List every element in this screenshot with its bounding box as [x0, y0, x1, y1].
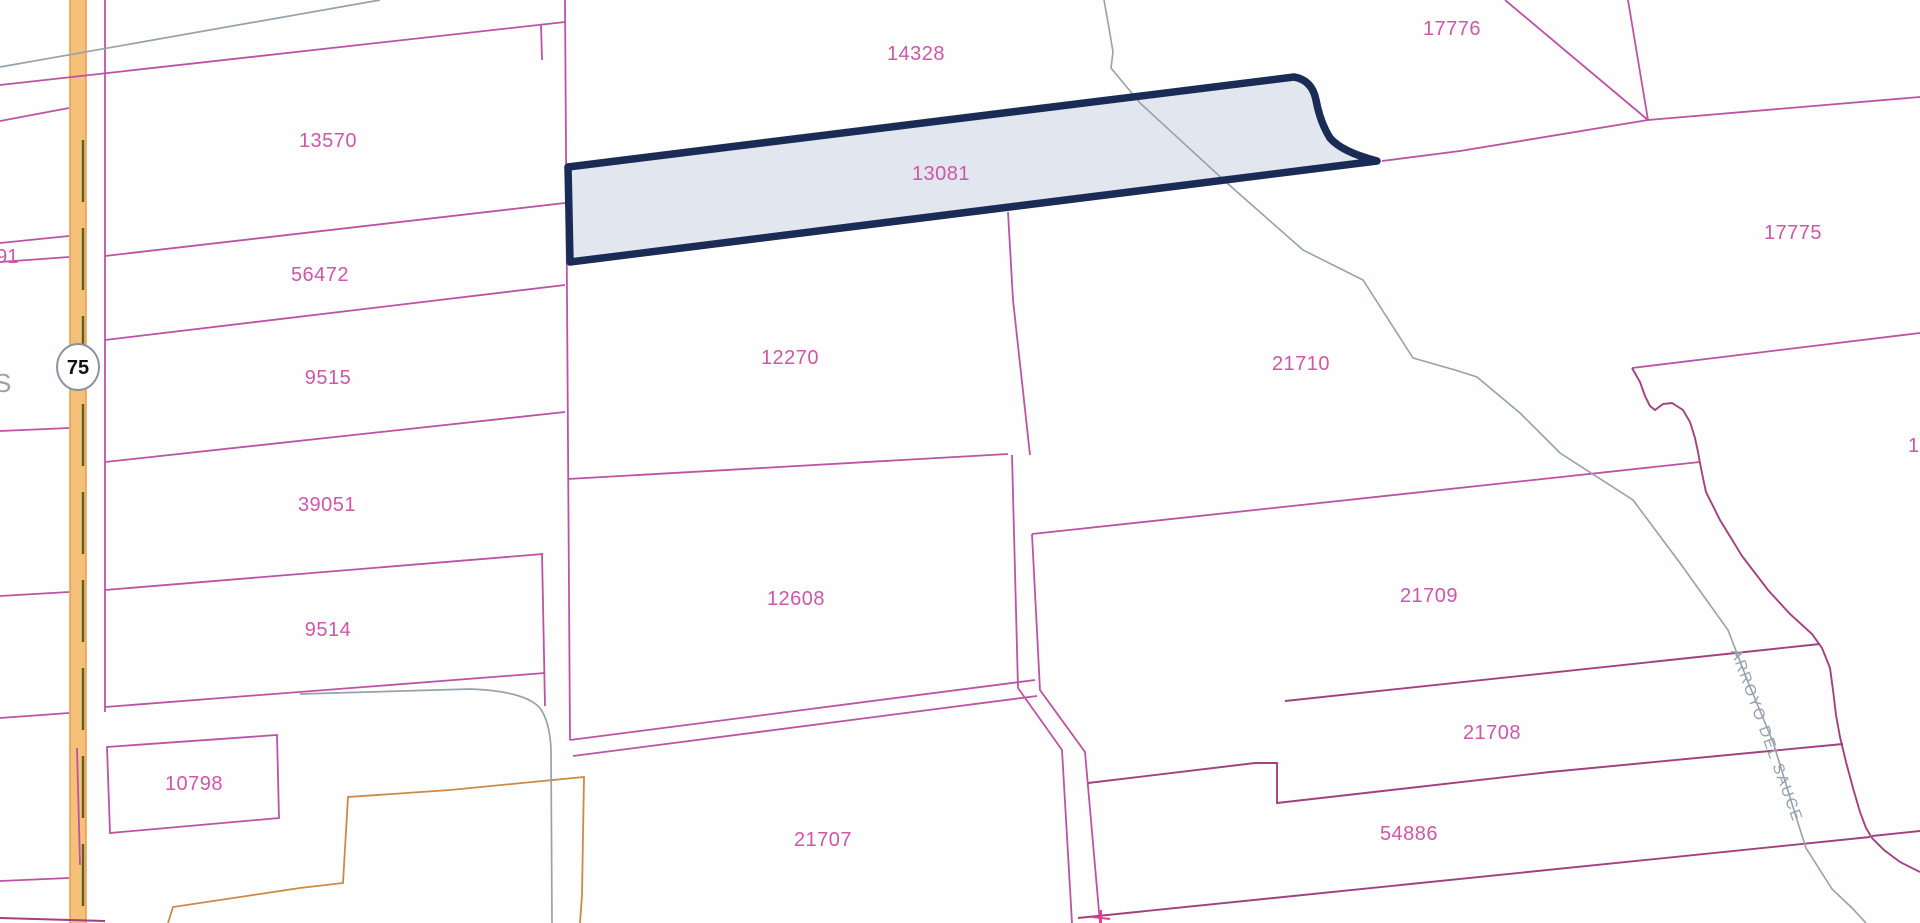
corner-tick	[1092, 910, 1110, 923]
parcel-label-54886: 54886	[1380, 823, 1438, 845]
orange-boundary-line	[168, 777, 584, 923]
parcel-label-12608: 12608	[767, 588, 825, 610]
parcel-label-56472: 56472	[291, 264, 349, 286]
parcel-label-9514: 9514	[305, 619, 352, 641]
parcel-label-10798: 10798	[165, 773, 223, 795]
map-canvas[interactable]: 75 1432817776135701777556472951512270217…	[0, 0, 1920, 923]
parcel-label-21709: 21709	[1400, 585, 1458, 607]
partial-label-1: S	[0, 368, 11, 398]
highway-shield-number: 75	[67, 357, 89, 379]
parcel-label-21708: 21708	[1463, 722, 1521, 744]
parcel-label-9515: 9515	[305, 367, 352, 389]
parcel-label-39051: 39051	[298, 494, 356, 516]
partial-label-0: 591	[0, 246, 18, 268]
parcel-label-14328: 14328	[887, 43, 945, 65]
parcel-label-13570: 13570	[299, 130, 357, 152]
parcel-label-17775: 17775	[1764, 222, 1822, 244]
stream-name-label: ARROYO DEL SAUCE	[1727, 647, 1805, 825]
parcel-label-12270: 12270	[761, 347, 819, 369]
map-viewport: 75 1432817776135701777556472951512270217…	[0, 0, 1920, 923]
parcel-label-21710: 21710	[1272, 353, 1330, 375]
parcel-label-21707: 21707	[794, 829, 852, 851]
parcel-label-13081-selected: 13081	[912, 163, 970, 185]
highway-shield: 75	[57, 344, 99, 390]
selected-parcel[interactable]	[568, 77, 1377, 262]
partial-label-2: 17	[1908, 435, 1920, 457]
parcel-label-17776: 17776	[1423, 18, 1481, 40]
